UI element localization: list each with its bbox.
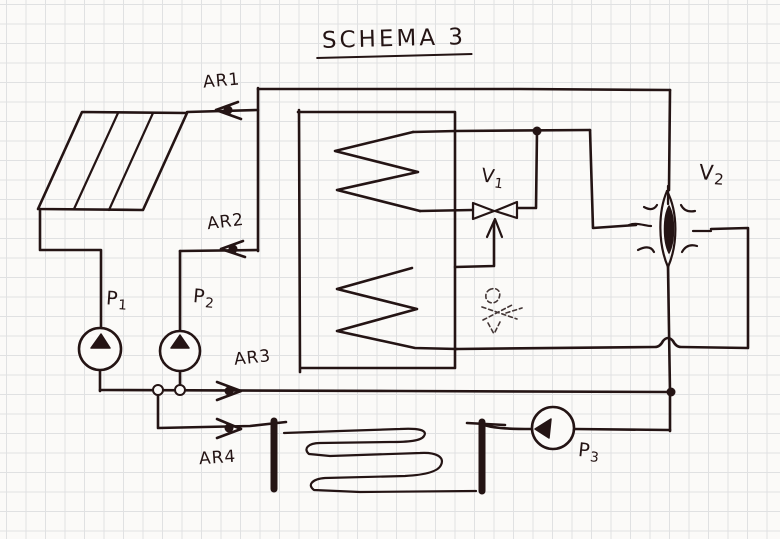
label-p2-sub: 2 [204,295,215,312]
label-p1-sub: 1 [118,297,129,314]
label-ar3: AR3 [233,346,272,370]
schematic-linework [0,0,780,539]
pump-p1 [79,328,121,370]
junction-dots [153,127,676,397]
pipe-coil1-to-v1 [420,210,472,211]
solar-collector [38,112,187,210]
pump-p3 [532,407,574,449]
pump-p2 [160,331,200,371]
mixing-valve-v2 [629,186,711,267]
pipes [40,88,748,431]
pipe-v1-right-riser [518,131,537,208]
hand-drawn-schematic: SCHEMA 3 AR1 AR2 AR3 AR4 P1 P2 P3 V1 V2 [0,0,780,539]
label-pump-p1: P1 [105,287,129,313]
label-valve-v1: V1 [479,164,506,192]
storage-tank [298,110,457,372]
pipe-bottom-return [457,228,748,349]
label-pump-p3: P3 [577,439,602,466]
heating-coil-bottom [337,268,457,349]
diagram-title: SCHEMA 3 [316,24,473,59]
label-pump-p2: P2 [192,285,216,312]
pipe-top-run [258,89,670,90]
pipe-p3-line-right [574,429,670,430]
check-valve-ar4 [217,419,241,438]
pipe-to-v2-left [590,130,636,228]
label-ar4: AR4 [198,447,237,470]
label-valve-v2: V2 [698,160,726,189]
pipe-ar2-line [180,250,258,251]
pipe-v1-to-coil2 [455,222,494,267]
label-v2-sub: 2 [713,170,725,189]
pipe-v2-bottom-drop [668,267,670,431]
label-p3-sub: 3 [589,449,600,466]
pipe-v2-top-drop [669,90,670,190]
ghost-valve-sketch [482,289,522,334]
heating-coil-top [335,132,420,211]
pipe-panel-return [40,209,101,329]
pipe-tank-top-out [413,130,590,132]
radiator-heat-exchanger [274,421,505,492]
serpentine-coil [284,429,476,492]
label-ar1: AR1 [202,69,241,92]
